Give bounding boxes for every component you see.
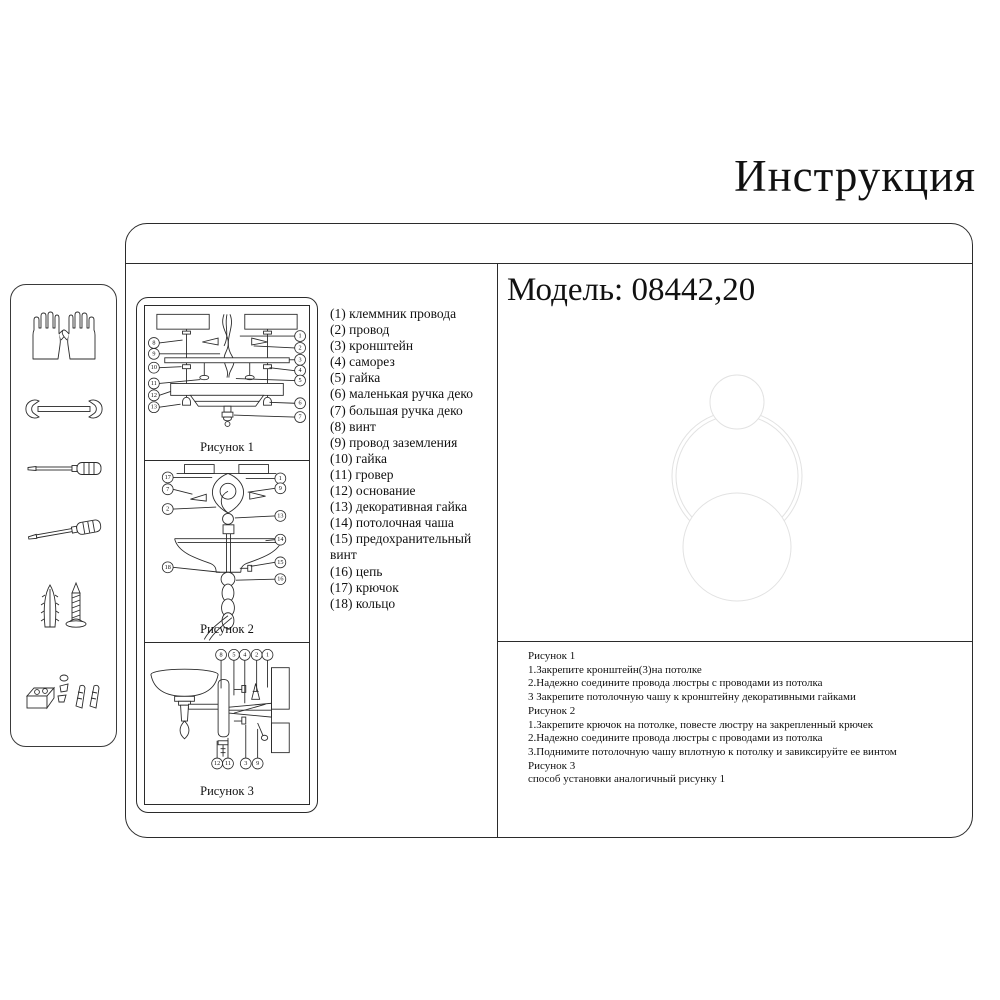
gloves-icon [25, 309, 103, 361]
figures-inner-frame: 8 9 10 11 12 13 [144, 305, 310, 805]
svg-text:9: 9 [279, 485, 282, 492]
figure-2-callouts-left: 17 7 2 18 [162, 472, 220, 573]
svg-text:2: 2 [255, 651, 258, 658]
part-item: (14) потолочная чаша [330, 515, 500, 531]
part-item: (1) клеммник провода [330, 306, 500, 322]
instruction-line: Рисунок 3 [528, 760, 960, 774]
installation-instructions: Рисунок 1 1.Закрепите кронштейн(3)на пот… [528, 650, 960, 787]
svg-text:5: 5 [232, 651, 235, 658]
svg-text:2: 2 [299, 344, 302, 351]
svg-text:3: 3 [299, 356, 302, 363]
svg-text:3: 3 [244, 760, 247, 767]
instruction-line: 3.Поднимите потолочную чашу вплотную к п… [528, 746, 960, 760]
figure-1-section: 8 9 10 11 12 13 [145, 306, 309, 461]
figure-2-caption: Рисунок 2 [145, 622, 309, 637]
screwdriver-icon [22, 457, 106, 481]
figure-2-diagram: 17 7 2 18 1 9 13 [145, 461, 309, 642]
figure-2-section: 17 7 2 18 1 9 13 [145, 461, 309, 643]
header-divider [126, 263, 972, 264]
svg-text:1: 1 [299, 333, 302, 340]
part-item: (3) кронштейн [330, 338, 500, 354]
lamp-watermark [657, 366, 819, 608]
part-item: (16) цепь [330, 564, 500, 580]
svg-text:13: 13 [151, 404, 157, 411]
instruction-sheet: Инструкция [0, 0, 1000, 1000]
screwdriver-angled-icon [22, 514, 106, 548]
part-item: (5) гайка [330, 370, 500, 386]
svg-text:8: 8 [220, 651, 223, 658]
page-title: Инструкция [734, 150, 976, 202]
figure-1-callouts-right: 1 2 3 4 5 6 7 [234, 331, 306, 423]
instruction-line: Рисунок 2 [528, 705, 960, 719]
svg-text:1: 1 [279, 475, 282, 482]
svg-text:15: 15 [277, 559, 283, 566]
anchor-and-screw-icon [22, 581, 106, 637]
svg-text:9: 9 [152, 350, 155, 357]
part-item: (17) крючок [330, 580, 500, 596]
wrench-icon [22, 394, 106, 424]
svg-text:12: 12 [151, 392, 157, 399]
figure-3-section: 8 5 4 2 1 12 11 3 9 [145, 643, 309, 804]
part-item: (18) кольцо [330, 596, 500, 612]
svg-text:1: 1 [266, 651, 269, 658]
svg-text:12: 12 [214, 760, 220, 767]
instruction-line: способ установки аналогичный рисунку 1 [528, 773, 960, 787]
part-item: (8) винт [330, 419, 500, 435]
svg-text:5: 5 [299, 377, 302, 384]
part-item: (11) гровер [330, 467, 500, 483]
svg-text:6: 6 [299, 400, 302, 407]
svg-text:11: 11 [225, 760, 231, 767]
tools-sidebar [10, 284, 117, 747]
instruction-line: 1.Закрепите крючок на потолке, повесте л… [528, 719, 960, 733]
part-item: (2) провод [330, 322, 500, 338]
svg-text:7: 7 [299, 414, 302, 421]
instruction-line: 2.Надежно соедините провода люстры с про… [528, 677, 960, 691]
part-item: (10) гайка [330, 451, 500, 467]
svg-text:2: 2 [166, 506, 169, 513]
instruction-line: Рисунок 1 [528, 650, 960, 664]
part-item: (7) большая ручка деко [330, 403, 500, 419]
instruction-line: 2.Надежно соедините провода люстры с про… [528, 732, 960, 746]
instruction-line: 1.Закрепите кронштейн(3)на потолке [528, 664, 960, 678]
part-item: (9) провод заземления [330, 435, 500, 451]
svg-text:17: 17 [165, 474, 171, 481]
fasteners-set-icon [22, 670, 106, 720]
part-item: (13) декоративная гайка [330, 499, 500, 515]
svg-text:13: 13 [277, 512, 283, 519]
part-item: (6) маленькая ручка деко [330, 386, 500, 402]
model-title: Модель: 08442,20 [507, 272, 755, 309]
svg-text:18: 18 [165, 564, 171, 571]
svg-text:7: 7 [166, 486, 169, 493]
svg-text:14: 14 [277, 536, 284, 543]
part-item: (12) основание [330, 483, 500, 499]
figure-1-diagram: 8 9 10 11 12 13 [145, 306, 309, 460]
figure-3-caption: Рисунок 3 [145, 784, 309, 799]
figures-box: 8 9 10 11 12 13 [136, 297, 318, 813]
svg-text:9: 9 [256, 760, 259, 767]
right-panel-divider [497, 641, 972, 642]
part-item: (15) предохранительный винт [330, 531, 500, 563]
parts-list: (1) клеммник провода (2) провод (3) крон… [330, 306, 500, 612]
figure-3-diagram: 8 5 4 2 1 12 11 3 9 [145, 643, 309, 804]
figure-1-caption: Рисунок 1 [145, 440, 309, 455]
svg-text:8: 8 [152, 339, 155, 346]
instruction-line: 3 Закрепите потолочную чашу к кронштейну… [528, 691, 960, 705]
svg-text:11: 11 [151, 380, 157, 387]
svg-text:16: 16 [277, 576, 283, 583]
part-item: (4) саморез [330, 354, 500, 370]
svg-text:10: 10 [151, 364, 157, 371]
